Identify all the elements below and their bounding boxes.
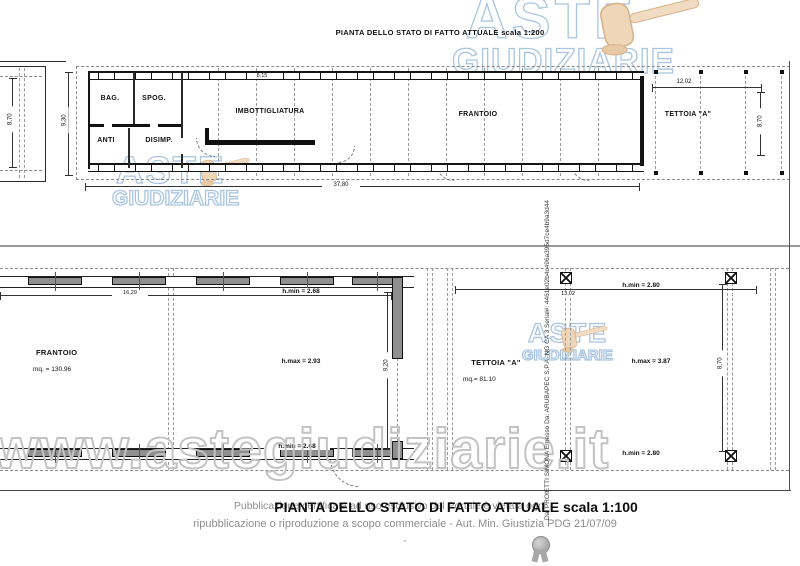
dimension-line — [85, 186, 640, 187]
dimension-label: 16,29 — [112, 290, 148, 296]
seal-medal — [532, 536, 550, 554]
column-grid-line — [446, 68, 447, 176]
room-label-spog: SPOG. — [130, 95, 178, 102]
column-grid-line — [294, 68, 295, 176]
area-label-frantoio: mq. = 130.96 — [32, 366, 98, 373]
exterior-wall-windows — [88, 71, 644, 80]
drawing-sheet: ASTE GIUDIZIARIE ASTE GIUDIZIARIE ASTE G… — [0, 0, 800, 566]
wall-pier — [196, 277, 250, 285]
column-grid-line — [727, 268, 733, 470]
column-grid-line — [770, 268, 776, 470]
partition-wall — [158, 124, 182, 127]
room-label-disimp: DISIMP. — [133, 137, 185, 144]
room-label-anti: ANTI — [88, 137, 124, 144]
height-label: h.min = 2.80 — [608, 450, 674, 457]
masonry-wall — [0, 276, 414, 288]
tettoia-column-line — [781, 71, 782, 174]
wall-pier — [112, 277, 166, 285]
footer-dash: - — [130, 536, 680, 547]
column-grid-line — [522, 68, 523, 176]
dimension-label: 8,70 — [718, 350, 725, 376]
exterior-wall — [640, 76, 644, 160]
partition-wall — [128, 128, 130, 168]
dimension-label: 9,30 — [62, 107, 69, 133]
url-watermark: www.astegiudiziarie.it — [0, 421, 609, 478]
dimension-label: 8,70 — [8, 106, 15, 132]
room-label-frantoio: FRANTOIO — [438, 111, 518, 118]
dimension-label: 12,02 — [668, 79, 700, 86]
dimension-label: 9,20 — [384, 352, 391, 378]
upper-plan-title: PIANTA DELLO STATO DI FATTO ATTUALE scal… — [270, 28, 610, 37]
lower-plan-title: PIANTA DELLO STATO DI FATTO ATTUALE scal… — [166, 499, 746, 515]
dimension-line — [652, 87, 762, 88]
pillar-symbol — [725, 272, 737, 284]
room-label-tettoia: TETTOIA "A" — [648, 111, 728, 118]
column-grid-line — [218, 68, 219, 176]
digital-signature-text: Da: PROIETTI SIMONA Emesso Da: ARUBAPEC … — [544, 175, 551, 520]
wall-pier — [280, 277, 334, 285]
room-label-tettoia: TETTOIA "A" — [456, 358, 536, 367]
area-label-tettoia: mq.= 81.10 — [462, 376, 520, 383]
room-label-imbottigliatura: IMBOTTIGLIATURA — [215, 108, 325, 115]
dimension-line — [0, 295, 392, 296]
brand-watermark-mid-left-giudiziarie: GIUDIZIARIE — [112, 188, 239, 209]
exterior-wall — [88, 71, 90, 169]
sheet-border-line — [789, 61, 790, 490]
height-label: h.min = 2.68 — [268, 288, 334, 295]
certification-disclaimer-line2: ripubblicazione o riproduzione a scopo c… — [130, 518, 680, 530]
sheet-divider-line — [0, 245, 800, 247]
room-label-frantoio: FRANTOIO — [30, 348, 112, 357]
partition-wall — [88, 124, 104, 127]
interior-wall — [205, 140, 315, 145]
height-label: h.max = 3.87 — [618, 358, 684, 365]
dimension-label: 8,15 — [248, 73, 276, 79]
column-grid-line — [256, 68, 257, 176]
column-grid-line — [332, 68, 333, 176]
exterior-wall-windows — [88, 163, 644, 172]
pillar-symbol — [560, 272, 572, 284]
partition-wall — [181, 72, 183, 138]
thick-wall — [392, 277, 403, 359]
dimension-line — [455, 289, 757, 290]
partition-wall — [112, 124, 150, 127]
room-label-bag: BAG. — [92, 95, 128, 102]
height-label: h.max = 2.93 — [268, 358, 334, 365]
column-grid-line — [484, 68, 485, 176]
dimension-label: 8,70 — [758, 108, 765, 134]
gavel-icon — [552, 326, 610, 354]
column-grid-line — [408, 68, 409, 176]
sheet-edge-line — [0, 61, 66, 62]
sheet-bottom-line — [0, 490, 791, 491]
partition-wall — [181, 154, 183, 168]
certification-seal-icon — [530, 536, 552, 564]
roof-dashed-line — [0, 268, 789, 269]
pillar-symbol — [725, 450, 737, 462]
exterior-wall — [640, 150, 644, 166]
height-label: h.min = 2.80 — [608, 282, 674, 289]
wall-pier — [28, 277, 82, 285]
column-grid-line — [370, 68, 371, 176]
dimension-label: 13,02 — [552, 291, 584, 297]
dimension-label: 37,80 — [322, 182, 360, 189]
column-grid-line — [560, 68, 561, 176]
column-grid-line — [598, 68, 599, 176]
